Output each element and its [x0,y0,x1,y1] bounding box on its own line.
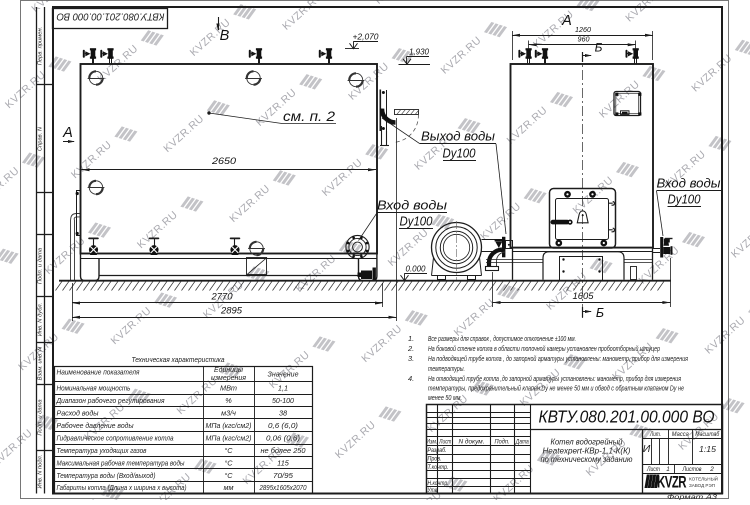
svg-text:Лист: Лист [646,466,660,473]
svg-text:Перв. примен.: Перв. примен. [38,27,44,66]
svg-text:Все размеры для справок , допу: Все размеры для справок , допустимое отк… [428,334,576,343]
svg-text:50-100: 50-100 [272,396,294,405]
svg-text:Dy100: Dy100 [400,214,434,229]
svg-text:В: В [220,28,230,44]
svg-text:0.000: 0.000 [406,264,426,273]
svg-text:1,1: 1,1 [278,383,288,392]
svg-text:38: 38 [279,408,288,417]
svg-text:Диапазон рабочего регулировани: Диапазон рабочего регулирования [56,396,165,405]
svg-text:м3/ч: м3/ч [221,408,236,417]
svg-text:2: 2 [709,466,714,473]
svg-text:МВт: МВт [220,383,237,392]
svg-text:Б: Б [596,306,604,320]
svg-text:Вход воды: Вход воды [657,176,721,191]
svg-text:температуры, предохранительный: температуры, предохранительный клапан Dy… [428,384,684,393]
svg-text:по техническому заданию: по техническому заданию [541,455,633,464]
svg-text:Формат А3: Формат А3 [667,494,718,500]
svg-text:Подп. и дата: Подп. и дата [38,247,44,284]
svg-text:Листов: Листов [682,466,702,473]
svg-text:Подп.: Подп. [495,439,510,446]
svg-text:И: И [643,443,651,455]
svg-text:Выход воды: Выход воды [421,129,495,144]
svg-text:Номинальная мощность: Номинальная мощность [57,383,131,392]
svg-text:Взам. инв. N: Взам. инв. N [38,346,44,381]
svg-text:температуры.: температуры. [428,364,465,373]
svg-text:мм: мм [223,483,233,492]
svg-text:Dy100: Dy100 [668,192,702,207]
svg-text:А: А [561,13,572,29]
svg-text:измерения: измерения [211,373,246,382]
svg-text:3.: 3. [408,354,414,363]
svg-text:КВТУ.080.201.00.000 ВО: КВТУ.080.201.00.000 ВО [539,407,715,427]
svg-text:°С: °С [224,458,233,467]
svg-text:2895: 2895 [220,306,242,316]
svg-text:Котел водогрейный: Котел водогрейный [551,437,624,446]
svg-text:2650: 2650 [211,156,236,166]
svg-text:Разраб.: Разраб. [428,447,447,454]
svg-text:Температура уходящих газов: Температура уходящих газов [57,446,147,455]
svg-text:МПа (кгс/см2): МПа (кгс/см2) [206,421,252,430]
svg-text:1,930: 1,930 [409,47,429,56]
svg-text:2895х1605х2070: 2895х1605х2070 [259,483,307,492]
svg-text:Справ. N: Справ. N [38,126,44,151]
svg-text:Рабочее давление воды: Рабочее давление воды [57,421,135,430]
svg-text:960: 960 [578,35,591,44]
svg-text:Б: Б [595,41,603,55]
svg-text:Т.контр.: Т.контр. [428,464,449,471]
svg-text:Утв.: Утв. [427,487,439,494]
svg-text:Изм.: Изм. [426,439,437,446]
svg-text:На боковой стенке котла в обла: На боковой стенке котла в области топочн… [428,344,660,353]
svg-text:Вход воды: Вход воды [377,198,447,213]
svg-text:Dy100: Dy100 [443,146,477,161]
svg-text:1.: 1. [408,334,414,343]
svg-text:Масштаб: Масштаб [695,431,719,438]
svg-text:Дата: Дата [515,439,529,446]
svg-text:+2,070: +2,070 [353,32,379,41]
svg-text:см. п. 2: см. п. 2 [283,109,336,124]
svg-text:На подводящей трубе котла ,: На подводящей трубе котла , до запорной … [428,354,688,363]
svg-text:А: А [62,125,73,141]
svg-text:КВТУ.080.201.00.000 ВО: КВТУ.080.201.00.000 ВО [57,11,165,23]
svg-text:°С: °С [224,471,233,480]
svg-text:°С: °С [224,446,233,455]
svg-text:Температура воды (Вход/выход): Температура воды (Вход/выход) [57,471,156,480]
svg-text:2770: 2770 [210,291,232,301]
svg-text:На отводящей трубе котла ,до з: На отводящей трубе котла ,до запорной ар… [428,374,681,383]
svg-text:%: % [225,396,232,405]
svg-text:1:15: 1:15 [699,444,716,454]
svg-text:Н.контр.: Н.контр. [428,480,449,487]
svg-text:N докум.: N докум. [459,439,485,446]
svg-text:Подп. и дата: Подп. и дата [38,399,44,436]
svg-text:Наименование показателя: Наименование показателя [57,368,140,377]
svg-text:115: 115 [277,458,290,467]
svg-text:Значение: Значение [268,370,299,379]
svg-text:2.: 2. [407,344,414,353]
svg-text:менее 50 мм.: менее 50 мм. [428,393,462,402]
svg-text:МПа (кгс/см2): МПа (кгс/см2) [206,433,252,442]
svg-text:не более 250: не более 250 [261,446,306,455]
svg-text:Масса: Масса [672,431,690,438]
svg-text:70/95: 70/95 [273,471,294,480]
svg-text:Расход воды: Расход воды [57,408,100,417]
svg-text:Гидравлическое сопротивление к: Гидравлическое сопротивление котла [57,433,174,442]
svg-text:0,6 (6,0): 0,6 (6,0) [268,421,298,430]
svg-text:1: 1 [666,466,670,473]
svg-text:Техническая характеристика: Техническая характеристика [132,355,225,364]
svg-text:0,06 (0,6): 0,06 (0,6) [266,433,300,442]
svg-text:Инв. N подл.: Инв. N подл. [38,455,44,489]
svg-text:Габариты котла (Длина х ширина: Габариты котла (Длина х ширина х высота) [57,483,187,492]
svg-text:Пров.: Пров. [428,455,442,462]
svg-text:KVZR: KVZR [657,474,687,492]
svg-text:Максимальная рабочая температу: Максимальная рабочая температура воды [57,458,186,467]
svg-text:Лит.: Лит. [649,431,661,438]
svg-text:Инв. N дубл.: Инв. N дубл. [38,303,44,337]
svg-text:1260: 1260 [575,25,592,34]
svg-text:Лист: Лист [439,439,452,446]
svg-text:КОТЕЛЬНЫЙ: КОТЕЛЬНЫЙ [689,474,718,481]
svg-text:1605: 1605 [573,291,594,301]
svg-text:4.: 4. [408,374,414,383]
svg-text:ЗАВОД РЭП: ЗАВОД РЭП [689,483,715,488]
